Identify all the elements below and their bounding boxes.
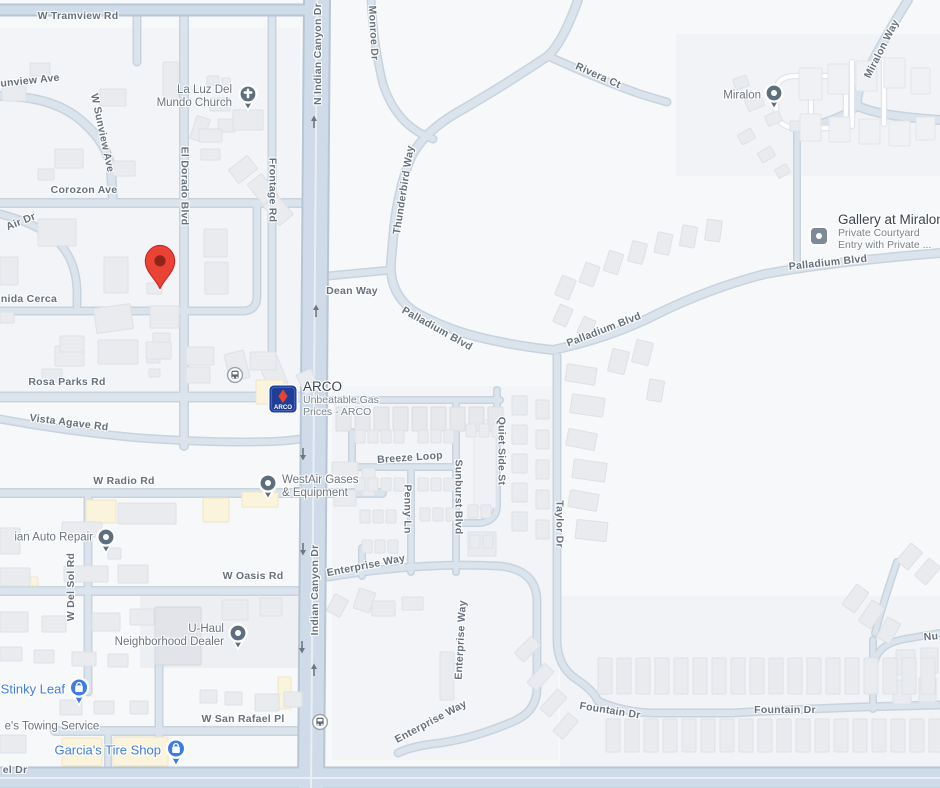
road-label-dean-way: Dean Way <box>326 286 378 297</box>
road-label-tramview: W Tramview Rd <box>38 11 119 22</box>
road-label-w-oasis-rd: W Oasis Rd <box>223 571 284 582</box>
poi-label-gallery-at-miralon[interactable]: Gallery at Miralon Private Courtyard Ent… <box>838 212 940 252</box>
poi-uhaul-line2: Neighborhood Dealer <box>115 636 224 649</box>
poi-gallery-sub2: Entry with Private ... <box>838 240 940 252</box>
road-label-n-indian-canyon-dr: N Indian Canyon Dr <box>313 3 324 105</box>
poi-label-uhaul[interactable]: U-Haul Neighborhood Dealer <box>115 623 224 649</box>
road-label-avenida-cerca: nida Cerca <box>1 294 57 305</box>
poi-label-westair-gases[interactable]: WestAir Gases & Equipment <box>282 474 358 500</box>
poi-label-auto-repair[interactable]: ian Auto Repair <box>14 532 93 545</box>
poi-arco-sub1: Unbeatable Gas <box>303 394 379 406</box>
poi-label-arco[interactable]: ARCO Unbeatable Gas Prices - ARCO <box>303 379 379 419</box>
poi-stinky-leaf-name: Stinky Leaf <box>1 683 65 698</box>
road-label-w-del-sol-rd: W Del Sol Rd <box>66 553 77 621</box>
poi-label-la-luz-del-mundo-church[interactable]: La Luz Del Mundo Church <box>157 84 232 110</box>
road-label-taylor-dr: Taylor Dr <box>554 500 565 548</box>
westair-place-icon[interactable] <box>256 471 280 501</box>
poi-gallery-title: Gallery at Miralon <box>838 212 940 227</box>
road-network-layer <box>0 0 940 788</box>
poi-label-stinky-leaf[interactable]: Stinky Leaf <box>1 683 65 698</box>
poi-label-miralon[interactable]: Miralon <box>723 90 761 103</box>
road-label-monroe-dr: Monroe Dr <box>366 5 379 60</box>
poi-church-line2: Mundo Church <box>157 97 232 110</box>
road-label-frontage-rd: Frontage Rd <box>267 158 278 223</box>
poi-westair-line1: WestAir Gases <box>282 474 358 487</box>
poi-miralon-name: Miralon <box>723 90 761 103</box>
road-label-penny-ln: Penny Ln <box>402 484 413 533</box>
miralon-place-icon[interactable] <box>762 81 786 111</box>
garcia-shopping-icon[interactable] <box>163 736 189 768</box>
poi-westair-line2: & Equipment <box>282 487 358 500</box>
map-pin-marker[interactable] <box>144 244 176 289</box>
poi-arco-title: ARCO <box>303 379 379 394</box>
bus-stop-icon[interactable] <box>312 714 329 731</box>
road-label-fountain-dr-2: Fountain Dr <box>754 705 816 716</box>
road-label-rosa-parks-rd: Rosa Parks Rd <box>28 377 105 388</box>
church-icon[interactable] <box>236 82 260 112</box>
road-label-el-dorado-blvd: El Dorado Blvd <box>179 147 190 226</box>
auto-repair-place-icon[interactable] <box>94 525 118 555</box>
road-label-indian-canyon-dr: Indian Canyon Dr <box>310 545 321 636</box>
bus-stop-icon[interactable] <box>227 367 244 384</box>
road-label-sunburst-blvd: Sunburst Blvd <box>453 459 464 534</box>
poi-uhaul-line1: U-Haul <box>115 623 224 636</box>
poi-arco-sub2: Prices - ARCO <box>303 407 379 419</box>
poi-church-line1: La Luz Del <box>157 84 232 97</box>
road-label-nu: Nu <box>923 631 938 643</box>
road-label-el-dr: el Dr <box>3 765 28 776</box>
map-canvas[interactable]: W Tramview Rd unview Ave W Sunview Ave C… <box>0 0 940 788</box>
road-label-w-radio-rd: W Radio Rd <box>93 476 154 487</box>
road-label-w-san-rafael-pl: W San Rafael Pl <box>201 714 284 725</box>
poi-towing-name: e's Towing Service <box>5 721 100 734</box>
poi-label-towing-service[interactable]: e's Towing Service <box>5 721 100 734</box>
road-label-corozon-ave: Corozon Ave <box>51 185 118 196</box>
poi-gallery-sub1: Private Courtyard <box>838 227 940 239</box>
gallery-place-icon[interactable] <box>808 225 830 247</box>
poi-auto-repair-name: ian Auto Repair <box>14 532 93 545</box>
arco-logo-text: ARCO <box>274 404 292 411</box>
poi-garcia-name: Garcia's Tire Shop <box>54 744 161 759</box>
road-label-quiet-side-st: Quiet Side St <box>496 417 507 486</box>
arco-logo-icon[interactable]: ARCO <box>268 384 298 414</box>
uhaul-place-icon[interactable] <box>226 621 250 651</box>
stinky-leaf-shopping-icon[interactable] <box>66 675 92 707</box>
poi-label-garcias-tire-shop[interactable]: Garcia's Tire Shop <box>54 744 161 759</box>
